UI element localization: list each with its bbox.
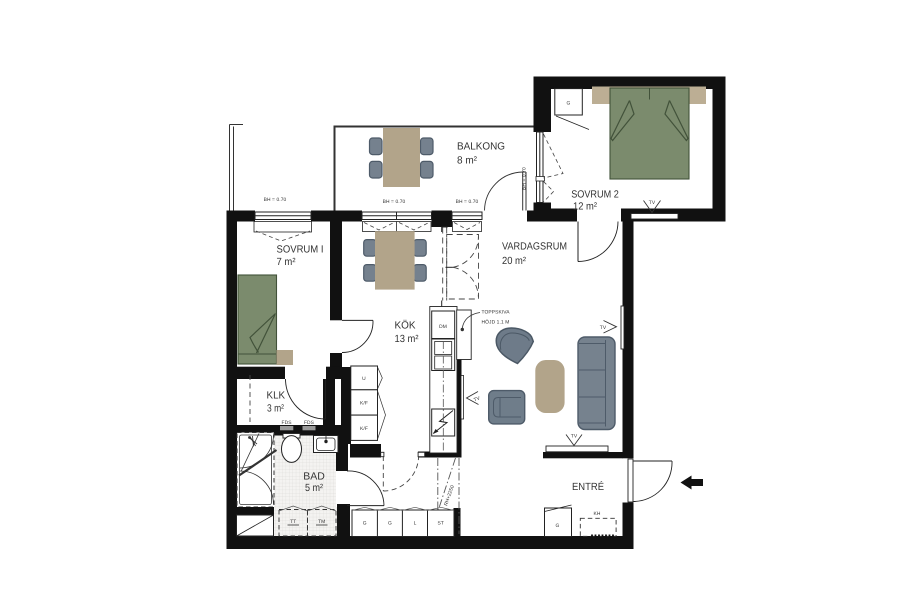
svg-text:5 m²: 5 m²	[305, 483, 323, 494]
svg-text:ST: ST	[437, 521, 443, 527]
svg-text:KÖK: KÖK	[395, 320, 416, 332]
svg-text:HÖJD 1.1 M: HÖJD 1.1 M	[482, 319, 510, 326]
svg-text:20 m²: 20 m²	[502, 256, 526, 267]
svg-text:G: G	[363, 521, 367, 527]
svg-text:K/F: K/F	[360, 426, 368, 432]
svg-text:BAD: BAD	[303, 472, 325, 483]
svg-text:G: G	[388, 521, 392, 527]
svg-text:TOPPSKIVA: TOPPSKIVA	[482, 310, 511, 316]
svg-text:8 m²: 8 m²	[457, 156, 478, 167]
svg-text:KLK: KLK	[267, 390, 286, 401]
svg-text:ENTRÉ: ENTRÉ	[572, 480, 604, 493]
svg-text:U: U	[362, 376, 366, 382]
svg-text:K/F: K/F	[360, 401, 368, 407]
svg-text:SOVRUM 2: SOVRUM 2	[571, 189, 619, 200]
svg-text:G: G	[556, 523, 560, 529]
svg-text:BH = 0.70: BH = 0.70	[264, 197, 287, 203]
svg-text:TV: TV	[571, 434, 578, 440]
svg-text:TV: TV	[649, 200, 656, 206]
svg-text:3 m²: 3 m²	[267, 404, 284, 415]
svg-text:TM: TM	[318, 519, 325, 525]
svg-text:DM: DM	[439, 324, 447, 330]
svg-text:KH: KH	[594, 511, 601, 517]
svg-text:SOVRUM I: SOVRUM I	[277, 244, 324, 255]
svg-text:12 m²: 12 m²	[573, 201, 597, 212]
svg-text:BALKONG: BALKONG	[457, 142, 505, 153]
svg-text:FDS: FDS	[304, 420, 315, 426]
svg-text:TV: TV	[600, 325, 607, 331]
svg-text:G: G	[567, 101, 571, 107]
svg-text:VARDAGSRUM: VARDAGSRUM	[502, 242, 567, 253]
svg-text:BH = 0.70: BH = 0.70	[383, 199, 406, 205]
svg-text:BH = 0.70: BH = 0.70	[456, 199, 479, 205]
svg-text:FDS: FDS	[282, 420, 293, 426]
svg-text:L: L	[414, 521, 417, 527]
svg-text:7 m²: 7 m²	[277, 257, 296, 268]
svg-text:TT: TT	[290, 519, 296, 525]
svg-text:13 m²: 13 m²	[395, 334, 419, 345]
svg-text:BH = 0.70: BH = 0.70	[522, 167, 528, 190]
